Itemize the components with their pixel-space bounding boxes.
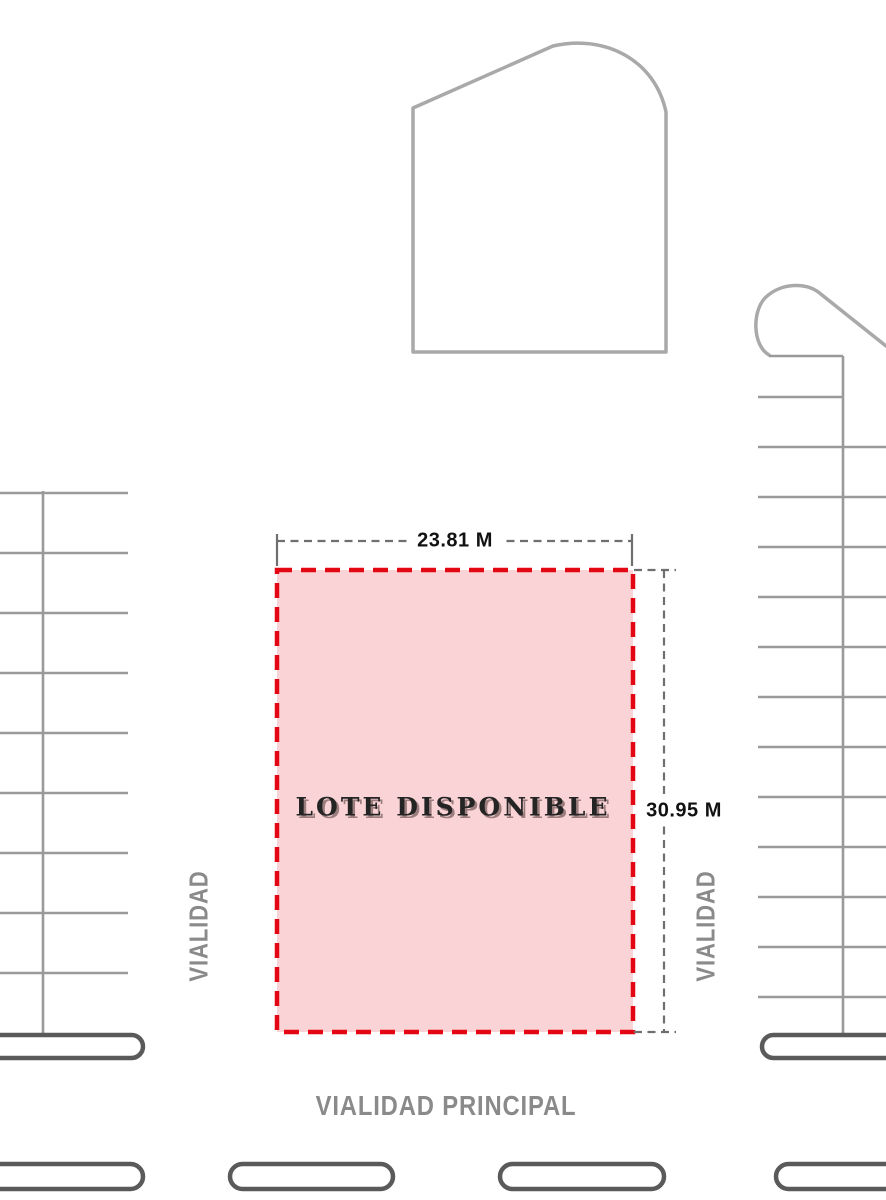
building-outline-right [756,285,886,355]
road-label-main: VIALIDAD PRINCIPAL [316,1090,577,1122]
site-plan-linework [0,0,886,1200]
road-label-left: VIALIDAD [184,870,215,981]
curb-bottom-4 [776,1164,886,1189]
site-plan: 23.81 M 30.95 M LOTE DISPONIBLE VIALIDAD… [0,0,886,1200]
parking-rows-right [758,356,886,1033]
curb-bottom-3 [500,1164,664,1189]
curb-bottom-1 [0,1164,143,1189]
curb-left-mid [0,1035,143,1058]
lot-height-dimension: 30.95 M [638,799,730,824]
curb-right-mid [762,1035,886,1058]
road-label-right: VIALIDAD [691,870,722,981]
lot-width-dimension: 23.81 M [409,529,501,554]
curb-bottom-2 [230,1164,393,1189]
building-outline-top [413,43,666,352]
lot-available-label: LOTE DISPONIBLE [295,793,610,822]
parking-rows-left [0,491,128,1033]
